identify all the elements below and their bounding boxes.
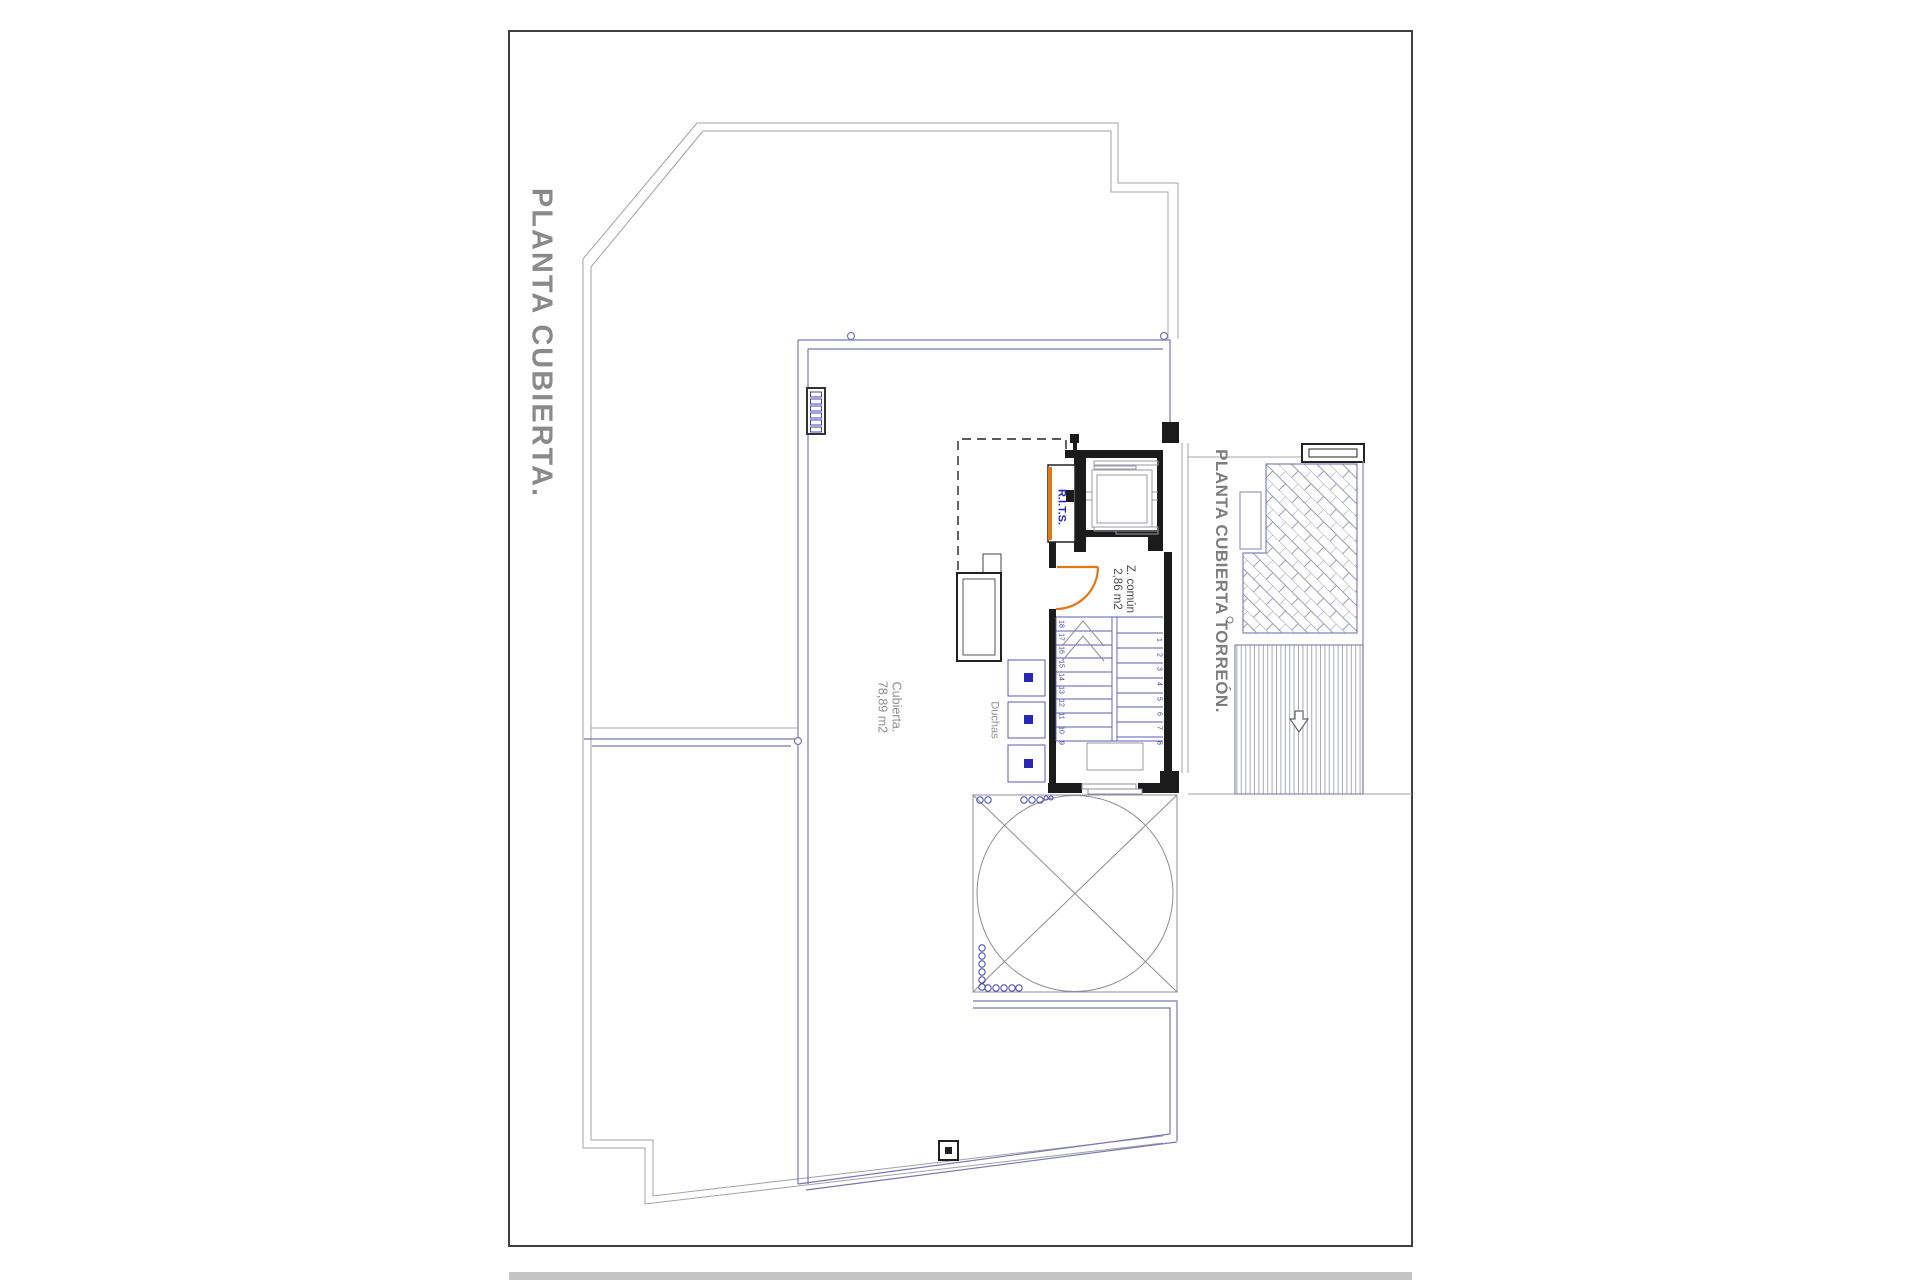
stair-number: 11 <box>1058 713 1065 720</box>
stair-number: 1 <box>1156 638 1163 642</box>
floor-plan-drawing <box>0 0 1920 1280</box>
plan-sheet: PLANTA CUBIERTA. PLANTA CUBIERTA TORREÓN… <box>0 0 1920 1280</box>
stair-number: 10 <box>1058 726 1065 734</box>
stair-number: 7 <box>1156 726 1163 730</box>
stair-number: 18 <box>1058 620 1065 628</box>
stair-number: 3 <box>1156 667 1163 671</box>
torreon-roof <box>1227 444 1364 794</box>
torreon-title: PLANTA CUBIERTA TORREÓN. <box>1211 449 1231 713</box>
roof-edge-marker <box>795 738 802 745</box>
stair-number: 5 <box>1156 697 1163 701</box>
drain-marker <box>939 1141 958 1160</box>
common-zone-size: 2,86 m2 <box>1111 568 1123 610</box>
stair-number: 4 <box>1156 682 1163 686</box>
stair-number: 17 <box>1058 633 1065 641</box>
telecom-riser-label: R.I.T.S. <box>1055 489 1068 525</box>
stair-number: 12 <box>1058 699 1065 707</box>
main-title: PLANTA CUBIERTA. <box>524 188 557 498</box>
stair-number: 16 <box>1058 646 1065 654</box>
roof-edge-marker <box>848 333 855 340</box>
torreon-lintel <box>1302 444 1364 462</box>
common-zone-label: Z. común 2,86 m2 <box>1110 565 1136 613</box>
vent-grille-icon <box>807 388 825 434</box>
common-zone-name: Z. común <box>1124 565 1136 613</box>
sheet-edge-shadow <box>509 1272 1412 1280</box>
stair-number: 6 <box>1156 712 1163 716</box>
roof-area-name: Cubierta. <box>889 682 903 733</box>
stair-number: 9 <box>1058 741 1065 745</box>
rits-orange-edge <box>1048 467 1052 540</box>
stair-number: 15 <box>1058 660 1065 668</box>
stair-number: 14 <box>1058 673 1065 681</box>
sliding-door <box>1082 784 1142 794</box>
stair-number: 8 <box>1156 741 1163 745</box>
roof-area-size: 78,89 m2 <box>875 681 889 733</box>
stair-number: 2 <box>1156 653 1163 657</box>
showers-label: Duchas <box>988 701 1001 738</box>
roof-edge-marker <box>1161 333 1168 340</box>
stair-number: 13 <box>1058 686 1065 694</box>
torreon-notch <box>1240 492 1261 549</box>
roof-area-label: Cubierta. 78,89 m2 <box>875 681 904 733</box>
